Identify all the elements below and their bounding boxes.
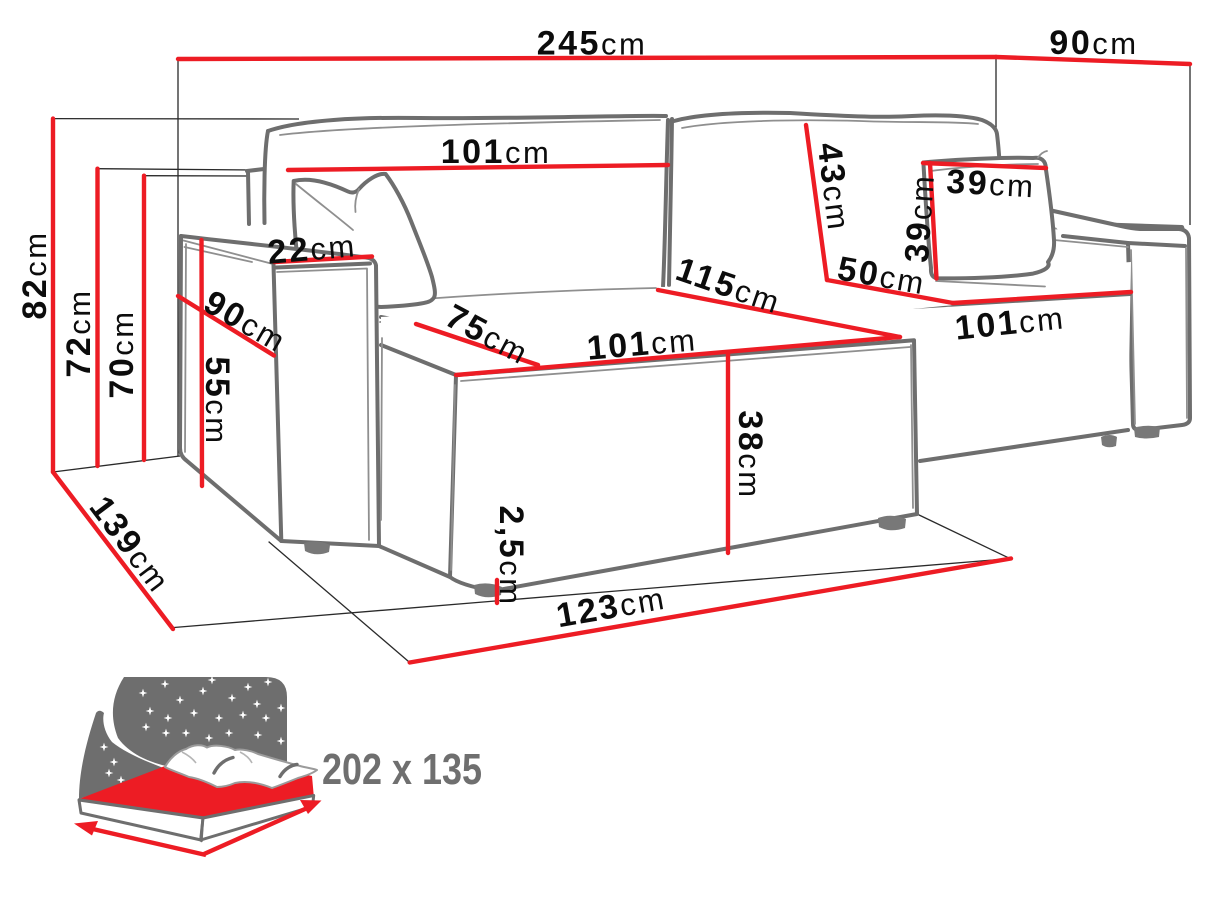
svg-text:39cm: 39cm — [945, 163, 1036, 206]
svg-text:72cm: 72cm — [60, 288, 98, 377]
svg-text:38cm: 38cm — [731, 410, 769, 499]
svg-text:202 x 135: 202 x 135 — [322, 745, 482, 794]
svg-text:82cm: 82cm — [16, 230, 54, 319]
svg-text:245cm: 245cm — [537, 25, 648, 63]
svg-text:90cm: 90cm — [1049, 24, 1138, 62]
svg-text:39cm: 39cm — [898, 172, 942, 264]
svg-text:101cm: 101cm — [441, 133, 552, 171]
svg-text:2,5cm: 2,5cm — [492, 505, 530, 606]
svg-text:70cm: 70cm — [103, 309, 141, 398]
svg-text:55cm: 55cm — [198, 356, 236, 445]
